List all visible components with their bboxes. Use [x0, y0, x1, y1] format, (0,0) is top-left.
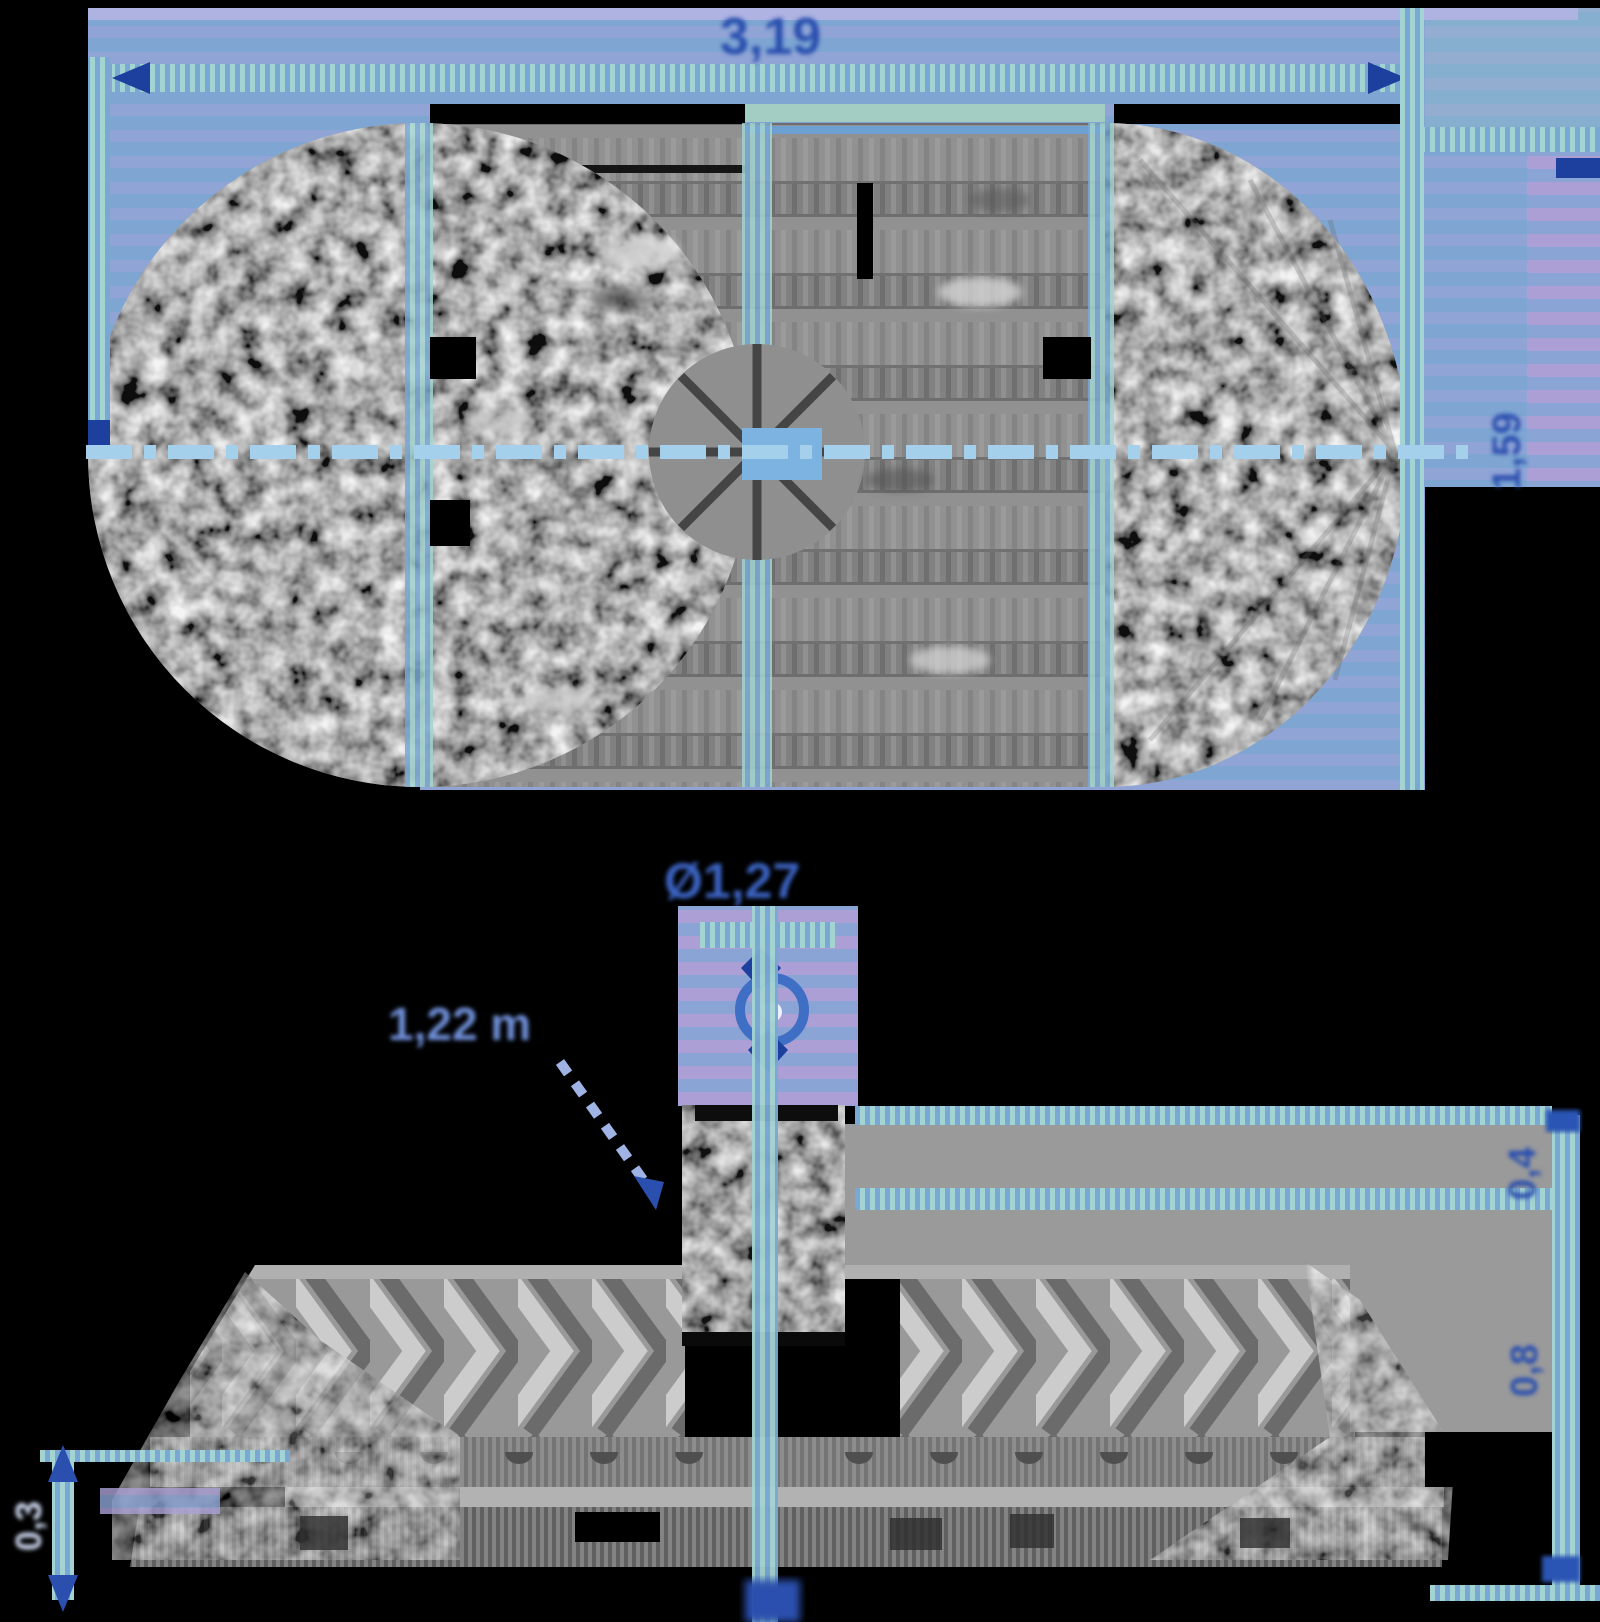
svg-text:Ø1,27: Ø1,27 — [664, 853, 800, 909]
svg-text:3,19: 3,19 — [720, 8, 821, 66]
svg-text:0,3: 0,3 — [8, 1501, 49, 1551]
svg-text:0,4: 0,4 — [1502, 1147, 1544, 1200]
svg-text:0,8: 0,8 — [1504, 1344, 1546, 1397]
svg-text:1,59: 1,59 — [1485, 412, 1529, 490]
svg-text:1,22 m: 1,22 m — [388, 998, 531, 1050]
